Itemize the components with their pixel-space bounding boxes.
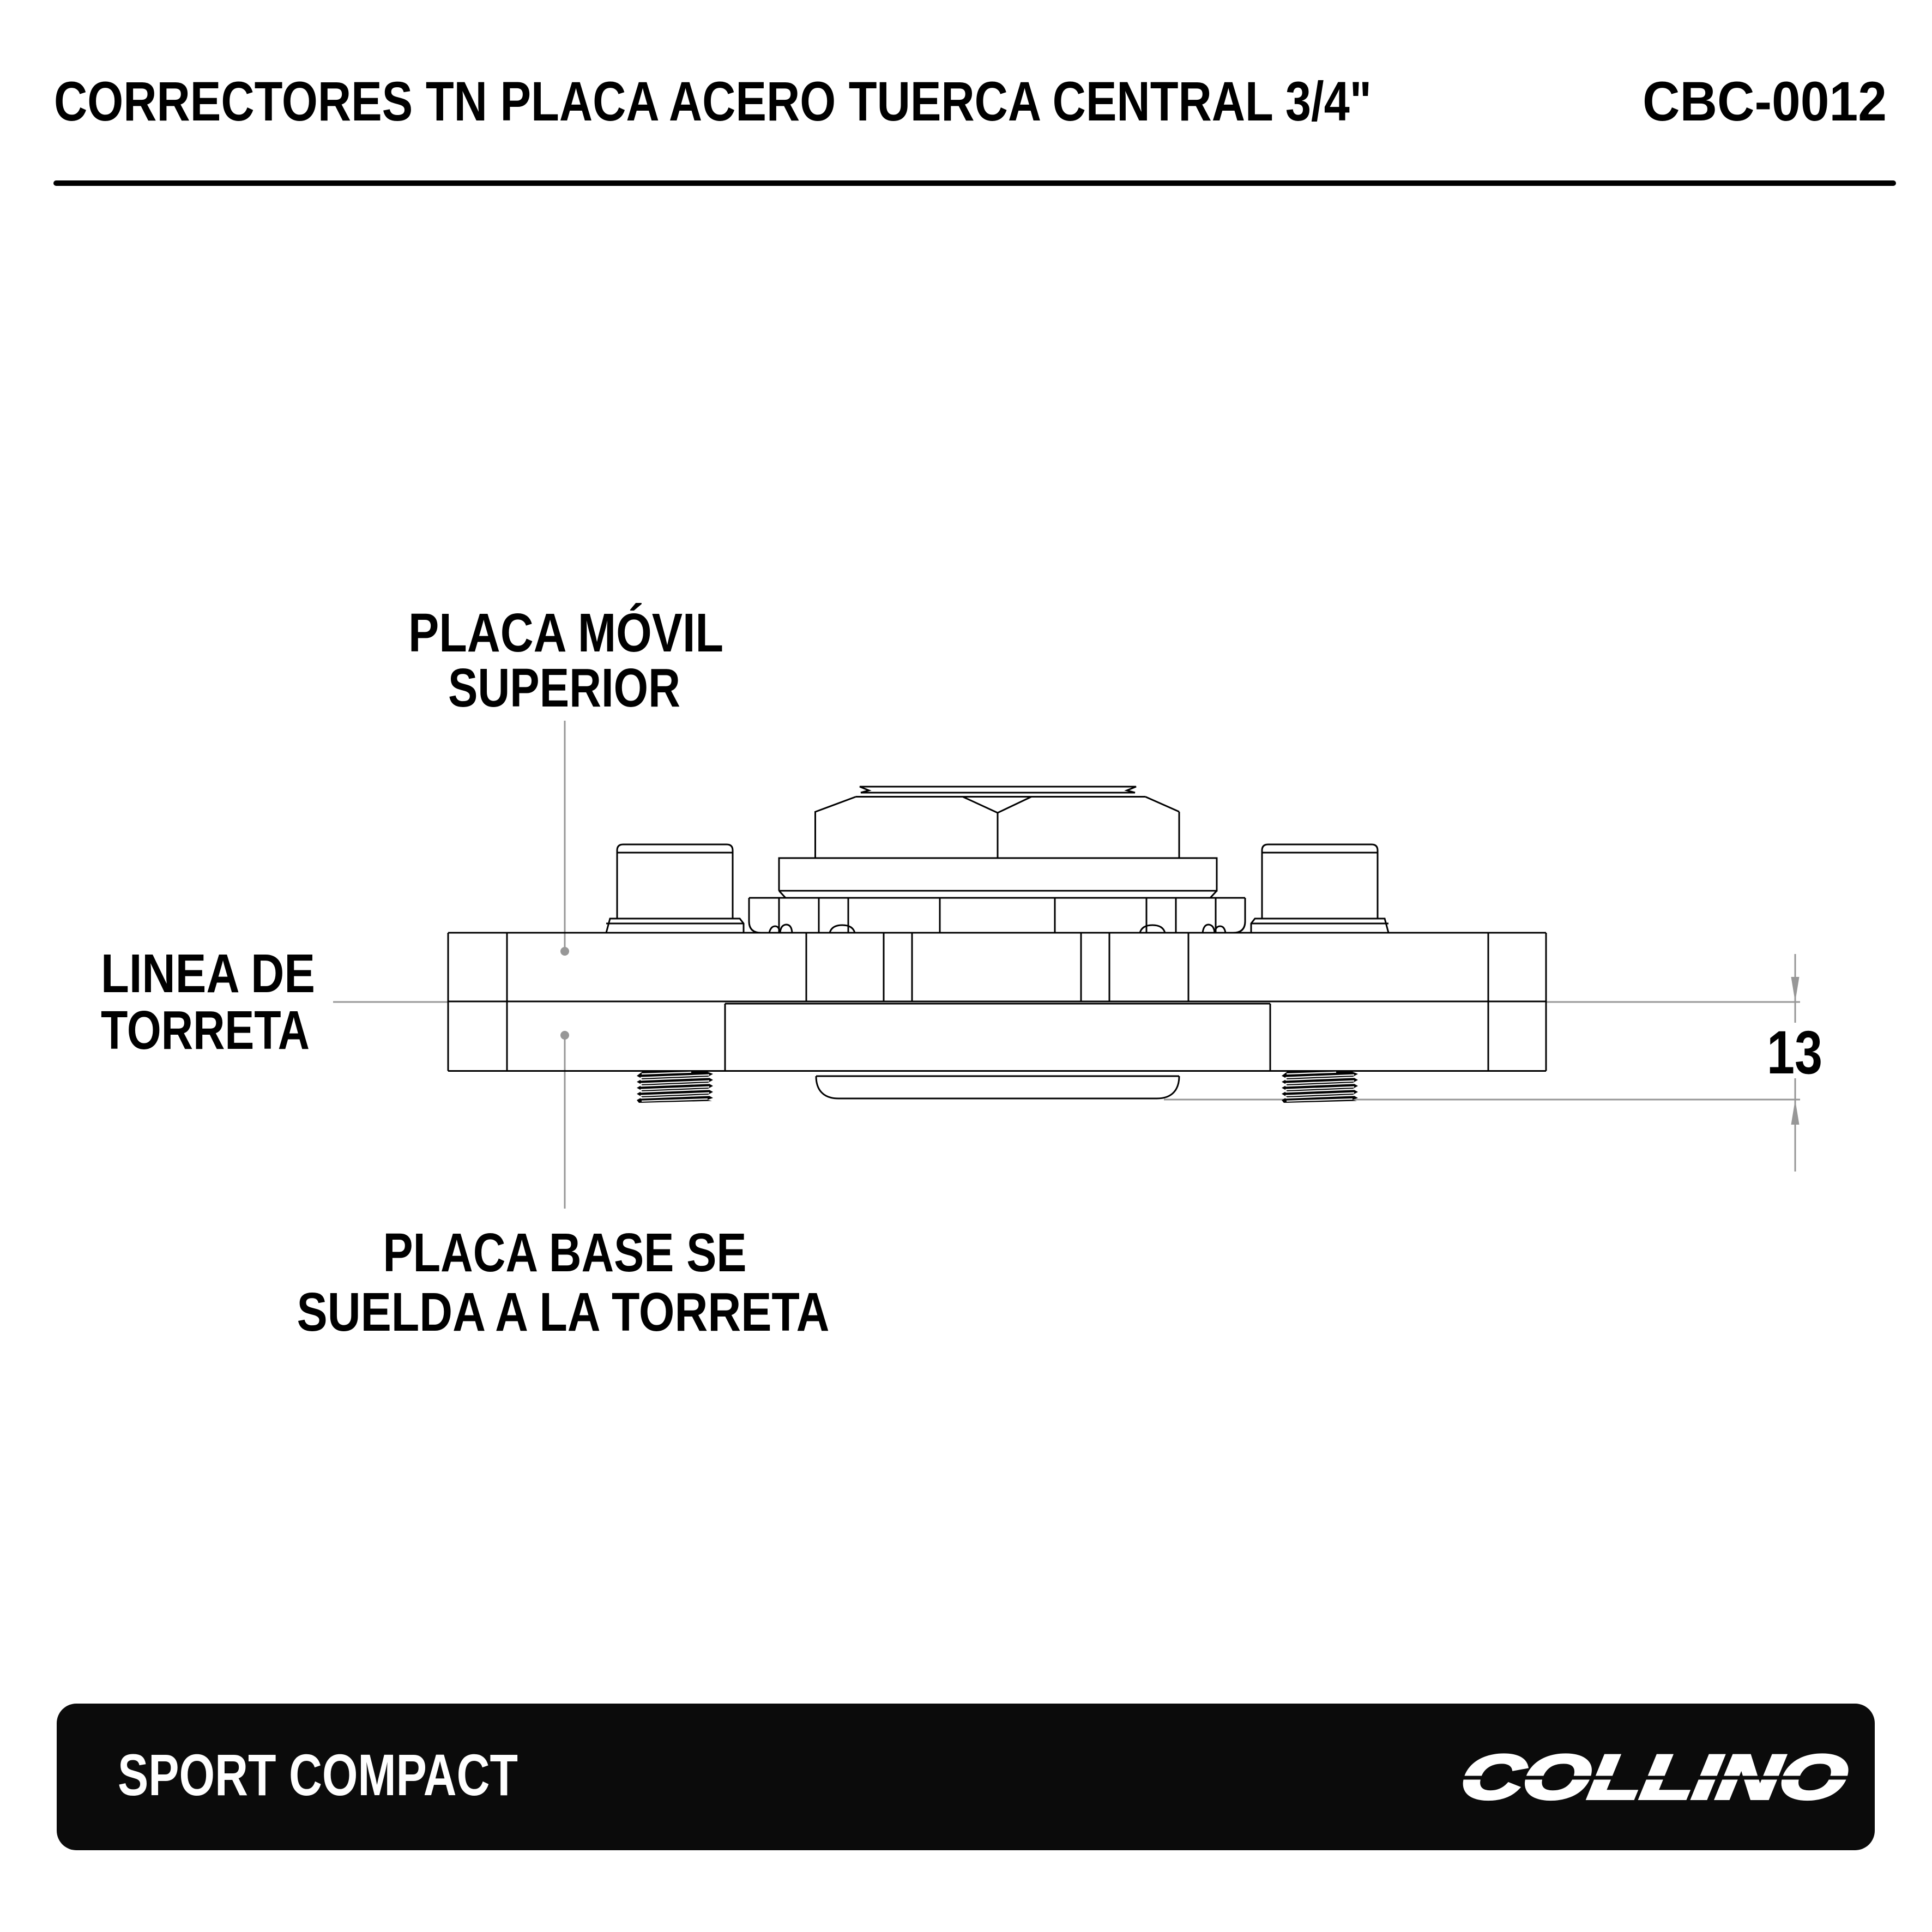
svg-text:TORRETA: TORRETA — [101, 1000, 310, 1061]
svg-text:CORRECTORES TN PLACA ACERO TUE: CORRECTORES TN PLACA ACERO TUERCA CENTRA… — [54, 70, 1372, 132]
svg-text:SUELDA A LA TORRETA: SUELDA A LA TORRETA — [297, 1282, 830, 1343]
svg-text:LINEA DE: LINEA DE — [101, 943, 315, 1004]
svg-text:PLACA MÓVIL: PLACA MÓVIL — [408, 602, 723, 663]
svg-text:CBC-0012: CBC-0012 — [1643, 70, 1887, 132]
svg-text:PLACA BASE SE: PLACA BASE SE — [383, 1222, 747, 1283]
svg-text:SPORT COMPACT: SPORT COMPACT — [118, 1742, 518, 1808]
svg-text:SUPERIOR: SUPERIOR — [448, 657, 680, 719]
svg-text:13: 13 — [1767, 1018, 1822, 1086]
